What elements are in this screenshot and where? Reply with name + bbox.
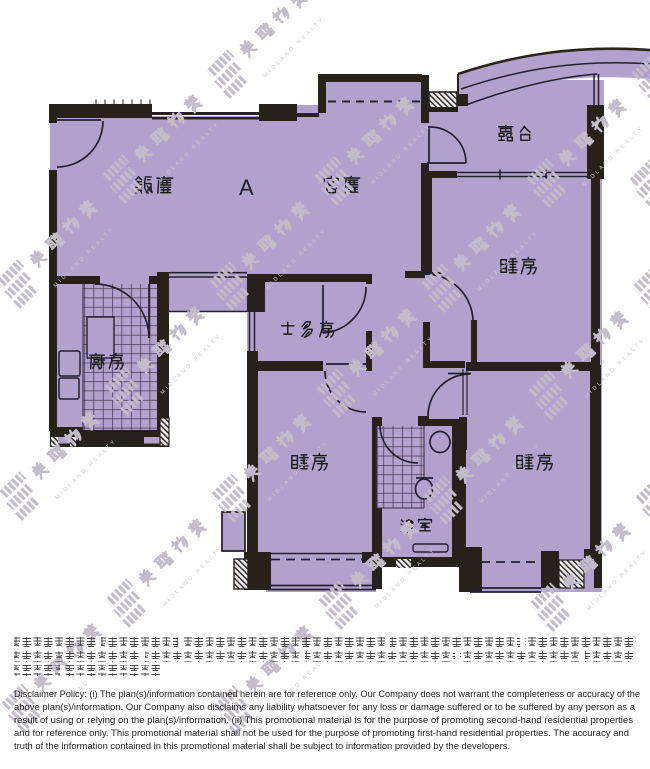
svg-text:above plan(s)/information. Our: above plan(s)/information. Our Company a… xyxy=(14,702,636,713)
svg-text:Disclaimer Policy: (i) The pla: Disclaimer Policy: (i) The plan(s)/infor… xyxy=(14,689,640,700)
svg-text:result of using or relying on: result of using or relying on the plan(s… xyxy=(14,715,633,726)
svg-text:A: A xyxy=(239,175,254,200)
svg-text:truth of the information conta: truth of the information contained in th… xyxy=(14,741,510,752)
svg-text:and for reference only. This p: and for reference only. This promotional… xyxy=(14,728,629,739)
